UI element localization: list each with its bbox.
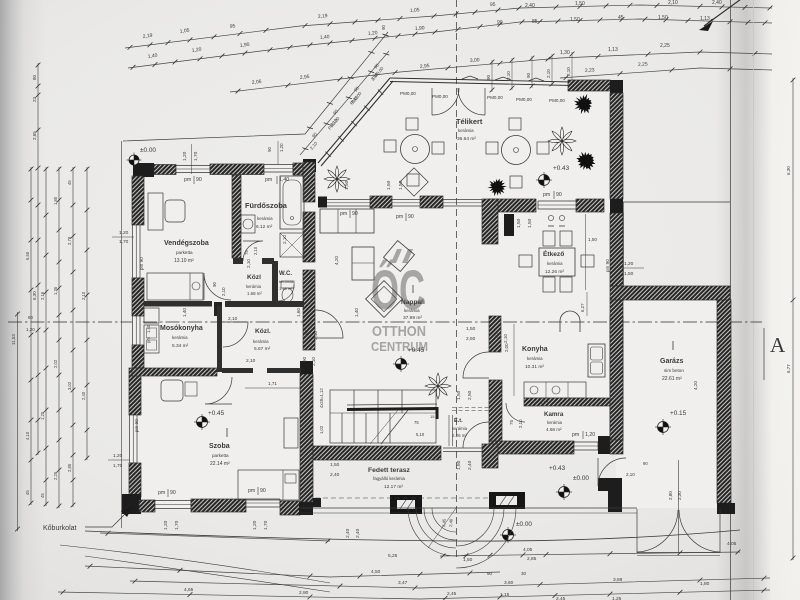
svg-text:kerámia: kerámia — [527, 356, 543, 361]
svg-text:90: 90 — [526, 72, 531, 78]
svg-text:1,50: 1,50 — [456, 460, 462, 470]
svg-text:22.14 m²: 22.14 m² — [210, 461, 230, 467]
svg-text:2,10: 2,10 — [246, 259, 251, 268]
svg-text:pm 90: pm 90 — [139, 257, 144, 270]
svg-text:1,20: 1,20 — [26, 327, 35, 332]
svg-text:4,05: 4,05 — [727, 541, 737, 547]
svg-text:6,30: 6,30 — [786, 166, 791, 175]
svg-text:2,40: 2,40 — [81, 391, 86, 400]
svg-text:3,00: 3,00 — [470, 57, 480, 64]
svg-text:2,06: 2,06 — [252, 79, 263, 86]
svg-text:1,15: 1,15 — [500, 592, 510, 598]
svg-text:4.68 m²: 4.68 m² — [546, 427, 562, 432]
svg-text:4,10: 4,10 — [25, 431, 30, 440]
svg-text:5.67 m²: 5.67 m² — [254, 346, 271, 352]
svg-text:2,10: 2,10 — [309, 140, 319, 150]
svg-text:4,50: 4,50 — [371, 569, 381, 575]
svg-text:1,20: 1,20 — [163, 520, 169, 530]
svg-text:2,85: 2,85 — [527, 556, 537, 562]
svg-text:5.34 m²: 5.34 m² — [172, 343, 189, 349]
svg-text:3,88: 3,88 — [613, 577, 623, 583]
svg-text:2,10: 2,10 — [311, 357, 316, 366]
svg-text:2,78: 2,78 — [67, 236, 72, 245]
svg-text:1,20: 1,20 — [191, 47, 202, 54]
svg-text:15: 15 — [430, 414, 435, 419]
svg-text:1,50: 1,50 — [588, 237, 597, 242]
svg-text:6,77: 6,77 — [786, 364, 791, 373]
svg-text:2,10: 2,10 — [546, 69, 551, 78]
svg-text:30: 30 — [521, 571, 527, 576]
svg-text:±0.00: ±0.00 — [573, 475, 589, 482]
svg-text:+0.43: +0.43 — [549, 465, 566, 472]
svg-text:90: 90 — [196, 177, 202, 183]
svg-text:1,40: 1,40 — [182, 308, 187, 317]
svg-text:1,50: 1,50 — [386, 180, 392, 190]
svg-text:2,90: 2,90 — [299, 590, 309, 596]
svg-text:Mosókonyha: Mosókonyha — [160, 325, 203, 332]
svg-text:1,20: 1,20 — [182, 151, 188, 161]
svg-text:90: 90 — [381, 25, 386, 30]
svg-text:6.12 m²: 6.12 m² — [256, 224, 273, 230]
svg-text:1,20: 1,20 — [113, 453, 123, 459]
svg-text:22.61 m²: 22.61 m² — [662, 376, 682, 382]
svg-text:1,50: 1,50 — [575, 1, 585, 7]
svg-text:kerámia: kerámia — [452, 426, 468, 431]
svg-text:2,95: 2,95 — [420, 63, 430, 70]
svg-text:45: 45 — [67, 180, 72, 185]
svg-text:2,30: 2,30 — [677, 491, 682, 500]
svg-text:90: 90 — [267, 147, 272, 152]
svg-text:5,25: 5,25 — [388, 553, 398, 559]
svg-text:pm: pm — [158, 490, 165, 496]
svg-text:12.17 m²: 12.17 m² — [384, 484, 403, 490]
svg-text:1,80: 1,80 — [700, 581, 710, 587]
svg-text:2,40: 2,40 — [345, 528, 351, 538]
svg-text:PM0,00: PM0,00 — [400, 91, 416, 96]
svg-text:2,19: 2,19 — [318, 13, 328, 20]
svg-text:90: 90 — [302, 356, 307, 362]
svg-text:kerámia: kerámia — [172, 335, 188, 340]
svg-text:90: 90 — [497, 20, 503, 26]
svg-text:1,20: 1,20 — [40, 411, 45, 420]
svg-text:Étkező: Étkező — [543, 249, 564, 258]
svg-text:6,27: 6,27 — [580, 303, 585, 312]
svg-text:PM0,00: PM0,00 — [349, 90, 363, 105]
svg-text:1,71: 1,71 — [540, 400, 549, 405]
svg-text:1,20: 1,20 — [119, 230, 129, 236]
svg-text:1,30: 1,30 — [560, 50, 570, 56]
svg-text:2,10: 2,10 — [566, 67, 571, 76]
svg-text:2,10: 2,10 — [246, 358, 256, 364]
svg-text:pm: pm — [265, 177, 272, 183]
svg-text:90: 90 — [260, 488, 266, 494]
svg-text:4,65: 4,65 — [184, 587, 194, 593]
svg-text:1,70: 1,70 — [113, 463, 123, 469]
svg-text:pm: pm — [572, 432, 579, 438]
svg-text:OTTHON: OTTHON — [372, 324, 426, 340]
svg-text:pm: pm — [340, 211, 347, 217]
svg-text:45: 45 — [618, 15, 624, 21]
svg-text:1,70: 1,70 — [263, 520, 269, 530]
svg-text:2,25: 2,25 — [53, 471, 58, 480]
svg-text:Konyha: Konyha — [522, 346, 548, 353]
svg-text:6,30: 6,30 — [32, 291, 37, 300]
svg-text:1,90: 1,90 — [240, 42, 251, 49]
svg-text:2,23: 2,23 — [585, 67, 595, 74]
svg-text:10.31 m²: 10.31 m² — [525, 364, 544, 370]
svg-text:parketta: parketta — [212, 453, 229, 458]
svg-text:45: 45 — [25, 490, 30, 495]
svg-text:Kamra: Kamra — [544, 411, 564, 418]
svg-text:kerámia: kerámia — [404, 308, 420, 313]
svg-text:90: 90 — [304, 329, 309, 335]
svg-text:90: 90 — [556, 192, 562, 198]
svg-text:1,71: 1,71 — [268, 381, 277, 386]
svg-text:+0.45: +0.45 — [208, 410, 225, 417]
svg-text:pm 90: pm 90 — [605, 259, 610, 272]
svg-text:45: 45 — [40, 493, 45, 498]
svg-text:1.68 m²: 1.68 m² — [247, 291, 262, 296]
svg-text:2,10: 2,10 — [518, 419, 523, 428]
svg-text:1,13: 1,13 — [700, 16, 710, 22]
svg-text:2,00: 2,00 — [504, 343, 509, 352]
svg-text:2,10: 2,10 — [253, 246, 258, 255]
svg-text:2,10: 2,10 — [313, 331, 318, 340]
svg-text:1,25: 1,25 — [612, 596, 622, 600]
svg-text:85: 85 — [532, 19, 538, 25]
svg-text:2,10: 2,10 — [503, 334, 508, 343]
svg-text:2,10: 2,10 — [282, 235, 287, 244]
svg-text:1,35: 1,35 — [53, 286, 58, 295]
svg-text:90: 90 — [408, 214, 414, 220]
svg-text:75: 75 — [509, 420, 514, 425]
svg-text:2,25: 2,25 — [638, 61, 648, 68]
svg-text:2,10: 2,10 — [668, 0, 678, 6]
svg-text:2,45: 2,45 — [556, 596, 566, 600]
svg-text:1,60: 1,60 — [296, 308, 301, 317]
svg-text:Télikert: Télikert — [456, 117, 483, 126]
svg-text:2,40: 2,40 — [330, 472, 340, 478]
svg-text:kerámia: kerámia — [257, 216, 273, 221]
svg-text:95: 95 — [490, 2, 496, 8]
svg-text:Közl: Közl — [247, 274, 261, 281]
svg-text:1,40: 1,40 — [279, 177, 289, 183]
svg-text:1,70: 1,70 — [193, 151, 199, 161]
svg-text:2,40: 2,40 — [525, 3, 535, 9]
svg-text:1,20: 1,20 — [279, 143, 284, 152]
svg-text:2,50: 2,50 — [467, 390, 473, 400]
svg-text:1,50: 1,50 — [344, 180, 350, 190]
svg-text:A: A — [770, 333, 786, 357]
svg-text:pm: pm — [184, 177, 191, 183]
svg-text:1,70: 1,70 — [119, 239, 129, 245]
svg-text:2,10: 2,10 — [626, 472, 635, 477]
svg-text:4,20: 4,20 — [334, 256, 339, 265]
svg-text:pm: pm — [396, 214, 403, 220]
svg-text:1,80: 1,80 — [53, 196, 58, 205]
svg-text:2,16: 2,16 — [40, 291, 45, 300]
svg-text:2,19: 2,19 — [142, 33, 153, 40]
svg-text:11,53: 11,53 — [11, 334, 16, 345]
svg-text:90: 90 — [212, 282, 217, 287]
svg-text:kerámia: kerámia — [246, 284, 262, 289]
svg-text:PM0,00: PM0,00 — [516, 97, 532, 102]
svg-text:1,90: 1,90 — [415, 25, 425, 32]
svg-text:1,50: 1,50 — [456, 390, 462, 400]
svg-text:1,50: 1,50 — [624, 271, 634, 277]
svg-text:4,05: 4,05 — [523, 547, 533, 553]
svg-text:kerámia: kerámia — [547, 261, 563, 266]
svg-text:+0.43: +0.43 — [553, 165, 570, 172]
svg-text:PM0,00: PM0,00 — [549, 98, 565, 103]
svg-text:1,50: 1,50 — [527, 218, 533, 228]
svg-text:2,10: 2,10 — [221, 287, 226, 296]
svg-text:1,02: 1,02 — [319, 425, 324, 434]
svg-text:kerámia: kerámia — [458, 128, 474, 133]
svg-text:2,25: 2,25 — [660, 43, 670, 49]
svg-text:1,50: 1,50 — [463, 557, 473, 563]
svg-text:1,50: 1,50 — [658, 15, 668, 21]
svg-text:2,10: 2,10 — [81, 291, 86, 300]
svg-text:2,50: 2,50 — [466, 336, 476, 342]
svg-text:2,40: 2,40 — [448, 518, 454, 527]
svg-text:3,02: 3,02 — [67, 381, 72, 390]
svg-text:2,40: 2,40 — [712, 0, 722, 6]
svg-text:3,60: 3,60 — [504, 580, 514, 586]
svg-text:90: 90 — [28, 315, 34, 320]
svg-text:2,85: 2,85 — [67, 463, 72, 472]
svg-text:2,40: 2,40 — [467, 460, 473, 470]
svg-text:1,50: 1,50 — [398, 180, 404, 190]
svg-text:pm: pm — [543, 192, 550, 198]
svg-text:1,50: 1,50 — [516, 218, 522, 228]
svg-text:Közl.: Közl. — [255, 328, 271, 335]
svg-text:2,45: 2,45 — [441, 518, 447, 527]
svg-text:pm: pm — [248, 488, 255, 494]
svg-text:2,40: 2,40 — [355, 528, 361, 538]
svg-text:W.C.: W.C. — [279, 271, 292, 277]
svg-text:90: 90 — [311, 131, 318, 138]
svg-text:75: 75 — [244, 250, 249, 255]
svg-text:90: 90 — [486, 74, 491, 80]
svg-text:Fedett terasz: Fedett terasz — [368, 467, 411, 474]
svg-text:1,13: 1,13 — [608, 47, 618, 53]
svg-text:37.99 m²: 37.99 m² — [403, 315, 422, 321]
svg-text:6,50: 6,50 — [25, 251, 30, 260]
svg-text:Kőburkolat: Kőburkolat — [43, 525, 77, 532]
svg-text:Garázs: Garázs — [660, 358, 683, 365]
svg-text:1,20: 1,20 — [252, 520, 258, 530]
svg-text:3,47: 3,47 — [398, 580, 408, 586]
svg-text:75: 75 — [414, 420, 419, 425]
svg-text:1,50: 1,50 — [330, 462, 340, 468]
svg-text:1,05: 1,05 — [179, 28, 190, 35]
svg-text:sim beton: sim beton — [664, 368, 684, 373]
svg-text:90: 90 — [494, 332, 499, 338]
svg-text:PM0,00: PM0,00 — [432, 94, 448, 99]
svg-text:Szoba: Szoba — [209, 443, 230, 450]
svg-text:5,10: 5,10 — [416, 432, 425, 437]
svg-text:90: 90 — [332, 108, 339, 115]
svg-text:4,20: 4,20 — [693, 381, 698, 390]
svg-text:±0.00: ±0.00 — [516, 521, 532, 528]
svg-text:2,10: 2,10 — [228, 316, 238, 322]
svg-text:Vendégszoba: Vendégszoba — [164, 240, 209, 247]
svg-text:13.10 m²: 13.10 m² — [174, 258, 194, 264]
svg-text:+0.15: +0.15 — [670, 410, 687, 417]
svg-text:36.64 m²: 36.64 m² — [457, 136, 476, 142]
svg-text:90: 90 — [643, 461, 648, 466]
svg-text:1,40: 1,40 — [320, 34, 330, 41]
svg-text:1,20: 1,20 — [368, 30, 378, 37]
svg-text:parketta: parketta — [176, 250, 193, 255]
svg-text:fagyálló kerámia: fagyálló kerámia — [373, 476, 406, 481]
svg-text:1,20: 1,20 — [585, 432, 595, 438]
svg-text:1,50: 1,50 — [466, 326, 476, 332]
svg-text:23: 23 — [32, 96, 37, 102]
svg-text:1,20: 1,20 — [624, 261, 634, 267]
svg-text:90: 90 — [352, 211, 358, 217]
svg-text:É.t.: É.t. — [454, 416, 463, 424]
svg-text:90: 90 — [170, 490, 176, 496]
svg-text:90: 90 — [487, 571, 493, 576]
svg-text:1,40: 1,40 — [147, 53, 158, 60]
svg-text:80: 80 — [32, 74, 37, 80]
svg-text:2,95: 2,95 — [300, 74, 311, 81]
svg-text:1,50: 1,50 — [570, 17, 580, 23]
svg-text:2,02: 2,02 — [53, 359, 58, 368]
svg-text:Fürdőszoba: Fürdőszoba — [245, 201, 288, 210]
svg-text:4x28=1,12: 4x28=1,12 — [319, 388, 324, 408]
svg-text:1,05: 1,05 — [410, 7, 420, 14]
svg-text:2.26 m²: 2.26 m² — [452, 433, 467, 438]
svg-text:kerámia: kerámia — [547, 420, 563, 425]
svg-text:2,65: 2,65 — [32, 131, 37, 140]
svg-text:12.26 m²: 12.26 m² — [545, 269, 564, 275]
svg-text:kerámia: kerámia — [253, 339, 269, 344]
svg-text:2,80: 2,80 — [668, 491, 673, 500]
svg-text:Nappali: Nappali — [401, 299, 425, 306]
svg-text:PM0,00: PM0,00 — [487, 95, 503, 100]
svg-text:1,70: 1,70 — [174, 520, 180, 530]
svg-text:95: 95 — [230, 23, 236, 30]
svg-text:+0.45: +0.45 — [408, 347, 425, 354]
svg-text:2,45: 2,45 — [447, 591, 457, 597]
svg-text:±0.00: ±0.00 — [140, 147, 156, 154]
svg-text:1,40: 1,40 — [354, 308, 359, 317]
svg-text:pm 90: pm 90 — [134, 419, 139, 432]
